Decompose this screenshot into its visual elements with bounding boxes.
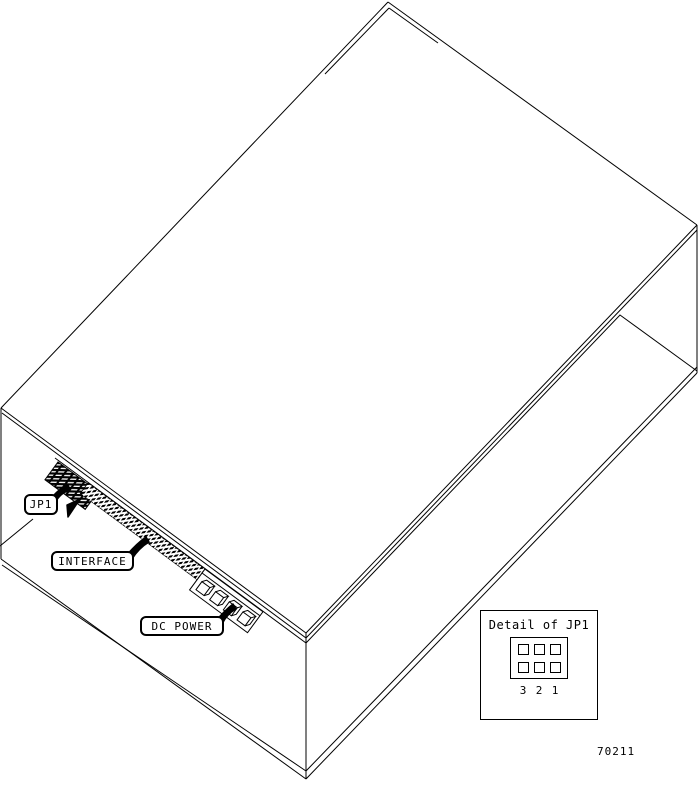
figure-number: 70211 <box>597 745 635 758</box>
bottom-left-edge-inner <box>2 565 306 771</box>
right-face-seam <box>306 315 697 643</box>
jp1-pin <box>550 644 561 655</box>
callout-dc-power: DC POWER <box>140 616 224 636</box>
jp1-pin-number-2: 2 <box>531 684 547 697</box>
callout-dc-power-label: DC POWER <box>152 621 213 632</box>
top-right-lid-edge <box>389 8 438 43</box>
callout-interface-label: INTERFACE <box>58 556 127 567</box>
callout-jp1: JP1 <box>24 494 58 515</box>
jp1-detail-title: Detail of JP1 <box>481 618 597 632</box>
callout-jp1-label: JP1 <box>30 499 53 510</box>
bottom-left-edge-outer <box>1 559 306 779</box>
jp1-reference-line <box>0 519 33 546</box>
front-left-top-edge <box>1 408 306 633</box>
jp1-pin-number-1: 1 <box>547 684 563 697</box>
leader-arrowhead-jp1 <box>67 499 80 517</box>
top-left-lid-edge <box>325 8 389 74</box>
top-right-edge <box>388 2 697 225</box>
jp1-pin <box>534 662 545 673</box>
figure-page: { "figure_number": "70211", "callouts": … <box>0 0 699 785</box>
jp1-detail-connector <box>510 637 568 679</box>
jp1-pin <box>550 662 561 673</box>
jp1-pin-number-3: 3 <box>515 684 531 697</box>
jp1-pin <box>518 644 529 655</box>
front-right-top-edge <box>306 225 697 633</box>
interface-connector-pins <box>80 483 216 588</box>
jp1-pin <box>534 644 545 655</box>
jp1-pin-numbers: 3 2 1 <box>481 684 597 697</box>
top-left-edge <box>1 2 388 408</box>
jp1-detail-inset: Detail of JP1 3 2 1 <box>480 610 598 720</box>
jp1-pin <box>518 662 529 673</box>
front-left-lid-line <box>2 413 306 638</box>
callout-interface: INTERFACE <box>51 551 134 571</box>
